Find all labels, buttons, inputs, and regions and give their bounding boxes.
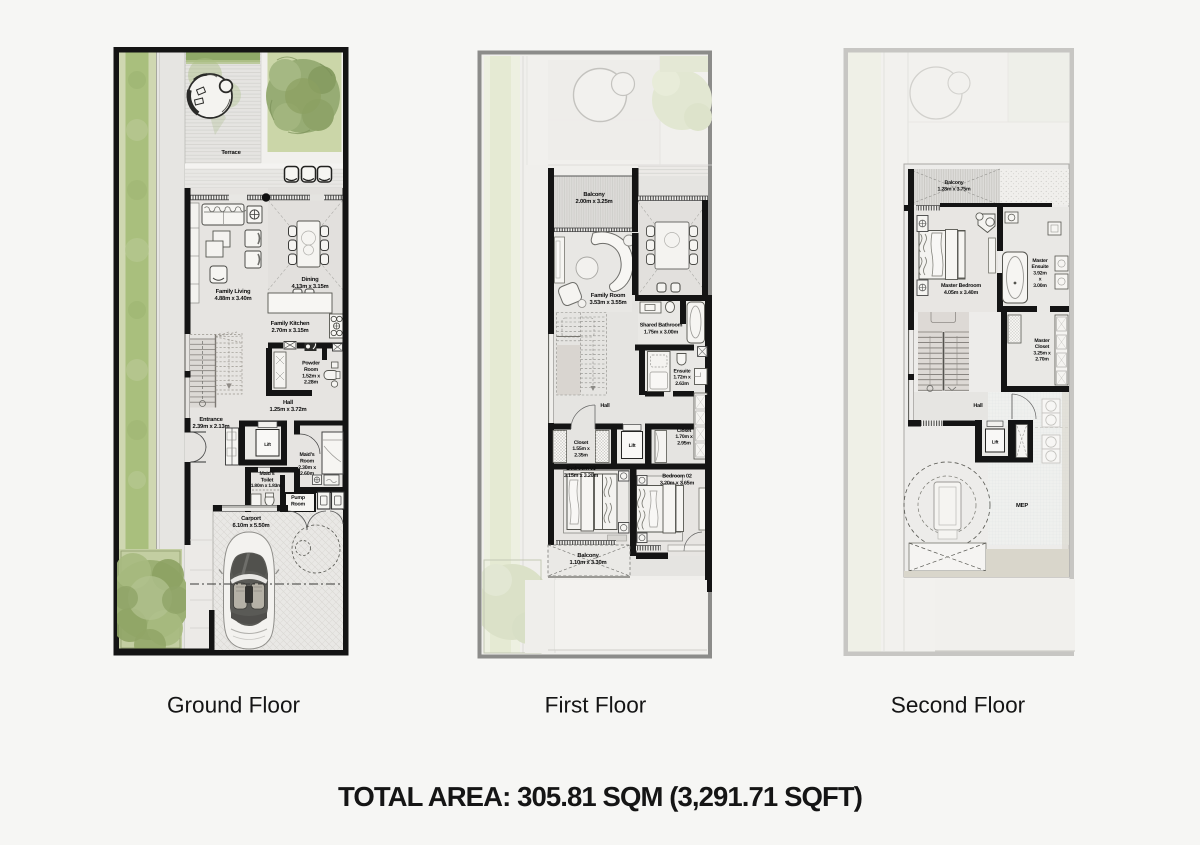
svg-text:TOTAL AREA: 305.81 SQM (3,291.: TOTAL AREA: 305.81 SQM (3,291.71 SQFT) [338, 781, 862, 812]
svg-text:Terrace: Terrace [221, 149, 241, 156]
svg-text:1.80m x 1.83m: 1.80m x 1.83m [251, 483, 282, 489]
svg-text:Ensuite1.72m x2.63m: Ensuite1.72m x2.63m [673, 369, 691, 387]
svg-text:Maid'sRoom2.30m x2.60m: Maid'sRoom2.30m x2.60m [298, 452, 316, 477]
svg-text:Lift: Lift [629, 443, 636, 449]
svg-text:Hall: Hall [600, 403, 610, 409]
svg-text:Closet1.55m x2.35m: Closet1.55m x2.35m [572, 440, 590, 458]
svg-text:Hall: Hall [973, 403, 983, 409]
svg-text:Second Floor: Second Floor [891, 693, 1026, 718]
svg-text:PowderRoom1.52m x2.28m: PowderRoom1.52m x2.28m [302, 361, 320, 386]
svg-text:Ground Floor: Ground Floor [167, 693, 301, 718]
svg-text:Bedroom 023.20m x 3.65m: Bedroom 023.20m x 3.65m [660, 474, 695, 487]
svg-text:Bedroom 033.15m x 3.20m: Bedroom 033.15m x 3.20m [564, 466, 599, 479]
svg-text:Lift: Lift [992, 440, 999, 445]
svg-text:MEP: MEP [1016, 502, 1028, 509]
svg-text:Master Bedroom4.05m x 3.40m: Master Bedroom4.05m x 3.40m [941, 283, 981, 296]
svg-text:Lift: Lift [264, 442, 271, 447]
svg-text:Maid'sToilet: Maid'sToilet [260, 471, 275, 483]
svg-text:MasterEnsuite3.92mx3.00m: MasterEnsuite3.92mx3.00m [1032, 258, 1049, 289]
svg-text:Closet1.70m x2.95m: Closet1.70m x2.95m [675, 428, 693, 446]
svg-text:Shared Bathroom1.75m x 3.00m: Shared Bathroom1.75m x 3.00m [640, 323, 683, 336]
svg-text:PumpRoom: PumpRoom [291, 495, 306, 507]
svg-text:MasterCloset3.25m x2.70m: MasterCloset3.25m x2.70m [1033, 338, 1051, 363]
svg-text:First Floor: First Floor [545, 693, 647, 718]
